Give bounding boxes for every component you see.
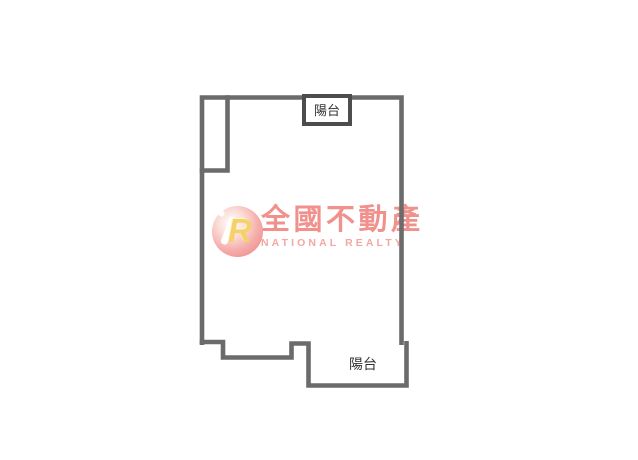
wall-main-outline <box>202 98 402 346</box>
floorplan-walls <box>0 0 638 460</box>
balcony-room-top: 陽台 <box>302 94 352 126</box>
balcony-label-bottom: 陽台 <box>349 357 377 372</box>
balcony-label-top: 陽台 <box>314 104 340 117</box>
floorplan-image: R 全國不動產 NATIONAL REALTY 陽台 陽台 <box>0 0 638 460</box>
